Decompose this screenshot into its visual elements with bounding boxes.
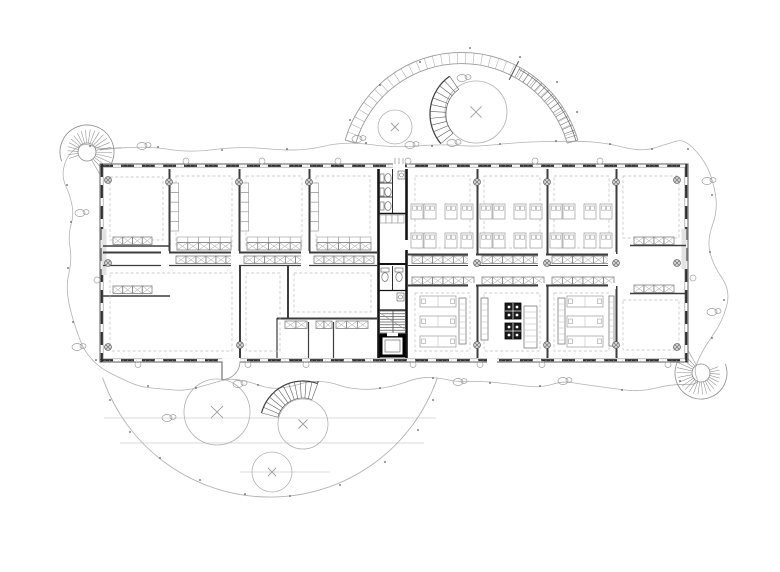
equipment-icon [505, 323, 521, 339]
desk-icon [600, 204, 612, 219]
tree-canopy [378, 110, 412, 144]
cabinet-icon [609, 296, 614, 346]
column-icon [166, 179, 173, 186]
desk-icon [445, 204, 457, 219]
equipment-icon [505, 303, 521, 319]
column-icon [236, 179, 243, 186]
elevator-shaft [381, 335, 404, 357]
column-icon [105, 260, 112, 267]
top-arc-walkway [345, 52, 578, 143]
desk-icon [411, 204, 423, 219]
shrub-icon [558, 378, 572, 385]
floor-plan-canvas [0, 0, 780, 572]
sink-icon [397, 293, 404, 301]
cabinet-icon [558, 298, 565, 344]
desk-icon [461, 233, 473, 248]
desk-icon [530, 233, 542, 248]
desk-icon [493, 204, 505, 219]
desk-icon [530, 204, 542, 219]
column-icon [237, 342, 244, 349]
shrub-icon [75, 210, 89, 217]
curved-stair-fan [430, 76, 459, 143]
column-icon [613, 260, 620, 267]
desk-icon [480, 204, 492, 219]
shrub-icon [453, 379, 467, 386]
curved-stair-fan [261, 381, 317, 417]
shrub-icon [405, 142, 419, 149]
floor-plan-drawing [0, 0, 780, 572]
toilet-icon [395, 268, 403, 281]
cabinet-icon [524, 306, 537, 348]
tree-canopy [184, 379, 250, 445]
desk-icon [600, 233, 612, 248]
column-icon [544, 260, 551, 267]
toilet-icon [380, 202, 391, 211]
desk-icon [514, 233, 526, 248]
table-icon [420, 336, 456, 347]
column-icon [105, 177, 112, 184]
desk-icon [550, 233, 562, 248]
table-icon [420, 316, 456, 327]
cabinet-icon [481, 298, 488, 340]
desk-icon [445, 233, 457, 248]
column-icon [105, 344, 112, 351]
table-icon [567, 336, 603, 347]
column-icon [306, 179, 313, 186]
table-icon [567, 296, 603, 307]
desk-icon [563, 204, 575, 219]
column-icon [474, 260, 481, 267]
column-icon [674, 177, 681, 184]
desk-icon [563, 233, 575, 248]
column-icon [674, 260, 681, 267]
column-icon [613, 179, 620, 186]
tree-canopy [445, 81, 507, 143]
classroom-bench-rows [177, 237, 371, 250]
column-icon [674, 344, 681, 351]
sink-icon [398, 171, 405, 179]
desk-icon [424, 233, 436, 248]
shrub-icon [72, 344, 86, 351]
cabinet-icon [459, 298, 466, 344]
toilet-icon [381, 268, 389, 281]
shrub-icon [352, 136, 366, 143]
desk-icon [584, 233, 596, 248]
desk-icon [584, 204, 596, 219]
shrub-icon [707, 309, 721, 316]
shrub-icon [702, 178, 716, 185]
desk-icon [493, 233, 505, 248]
column-icon [474, 342, 481, 349]
toilet-icon [380, 188, 391, 197]
shrub-icon [457, 75, 471, 82]
table-icon [420, 296, 456, 307]
desk-icon [480, 233, 492, 248]
desk-icon [514, 204, 526, 219]
desk-icon [411, 233, 423, 248]
desk-icon [461, 204, 473, 219]
desk-icon [550, 204, 562, 219]
column-icon [613, 342, 620, 349]
desk-icon [424, 204, 436, 219]
tree-canopy [278, 399, 328, 449]
terrace-lines [104, 418, 436, 472]
shrub-icon [137, 143, 151, 150]
column-icon [544, 342, 551, 349]
column-icon [474, 179, 481, 186]
table-icon [567, 316, 603, 327]
column-icon [544, 179, 551, 186]
toilet-icon [380, 174, 391, 183]
